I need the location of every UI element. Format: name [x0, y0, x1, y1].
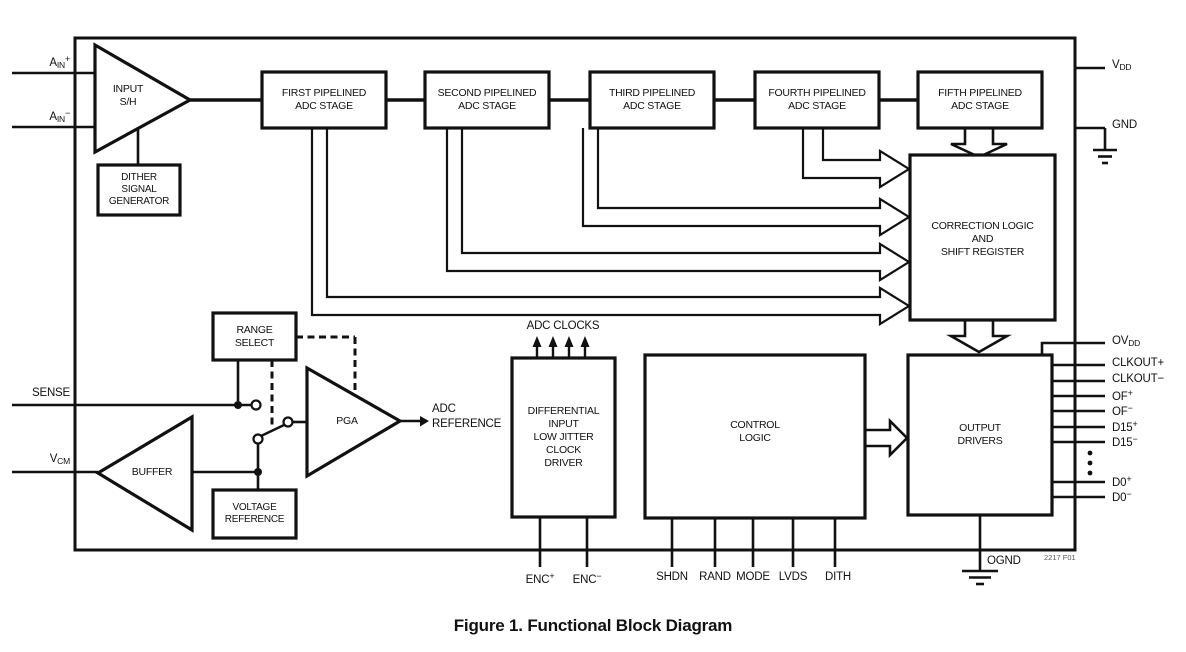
voltage-reference-label: VOLTAGE REFERENCE	[215, 492, 294, 536]
pin-of-plus: OF+	[1112, 388, 1133, 403]
bus-ellipsis-dots	[1088, 451, 1093, 476]
pin-d0-plus: D0+	[1112, 474, 1131, 489]
adc-clocks-label: ADC CLOCKS	[513, 320, 613, 332]
stage4-bus-arrow	[803, 128, 909, 187]
correction-label: CORRECTION LOGIC AND SHIFT REGISTER	[912, 160, 1053, 318]
control-right-arrow	[865, 421, 907, 455]
pin-clkout-minus: CLKOUT−	[1112, 373, 1164, 385]
pin-sense: SENSE	[16, 387, 70, 399]
pin-of-minus: OF−	[1112, 403, 1133, 418]
pin-enc-plus: ENC+	[515, 571, 565, 586]
stage3-label: THIRD PIPELINEDADC STAGE	[592, 74, 712, 126]
pin-d15-plus: D15+	[1112, 419, 1138, 434]
pin-ognd: OGND	[987, 555, 1021, 567]
stage5-down-arrow	[951, 128, 1007, 157]
input-sh-label: INPUT S/H	[93, 80, 163, 112]
adc-reference-label: ADC REFERENCE	[432, 402, 501, 432]
stage2-label: SECOND PIPELINEDADC STAGE	[427, 74, 547, 126]
dither-label: DITHER SIGNAL GENERATOR	[100, 167, 178, 213]
pin-ovdd: OVDD	[1112, 335, 1140, 348]
pin-ain-minus: AIN−	[20, 108, 70, 124]
pin-clkout-plus: CLKOUT+	[1112, 357, 1164, 369]
pin-vdd: VDD	[1112, 59, 1131, 72]
stage1-label: FIRST PIPELINEDADC STAGE	[264, 74, 384, 126]
control-logic-label: CONTROL LOGIC	[647, 357, 863, 507]
output-drivers-label: OUTPUT DRIVERS	[910, 357, 1050, 513]
pin-ain-plus: AIN+	[20, 54, 70, 70]
pin-enc-minus: ENC−	[562, 571, 612, 586]
stage2-bus-arrow	[447, 128, 909, 280]
pin-gnd: GND	[1112, 119, 1137, 131]
adc-clock-arrows	[533, 336, 590, 358]
stage5-label: FIFTH PIPELINEDADC STAGE	[920, 74, 1040, 126]
pga-output-arrowhead	[420, 416, 429, 427]
clock-driver-label: DIFFERENTIAL INPUT LOW JITTER CLOCK DRIV…	[514, 360, 613, 515]
vdd-gnd-lines	[1075, 68, 1117, 163]
range-select-label: RANGE SELECT	[215, 315, 294, 358]
pin-dith: DITH	[813, 571, 863, 583]
pin-vcm: VCM	[20, 453, 70, 466]
functional-block-diagram: INPUT S/H DITHER SIGNAL GENERATOR FIRST …	[0, 0, 1186, 652]
stage3-bus-arrow	[583, 128, 909, 235]
pga-label: PGA	[320, 414, 374, 428]
pin-d15-minus: D15−	[1112, 434, 1138, 449]
buffer-label: BUFFER	[120, 465, 184, 479]
stage4-label: FOURTH PIPELINEDADC STAGE	[757, 74, 877, 126]
figure-ref: 2217 F01	[1044, 553, 1076, 562]
stage-bus-arrows	[312, 128, 909, 324]
correction-down-arrow	[951, 320, 1007, 352]
switch-blade[interactable]	[261, 425, 284, 436]
bottom-pin-lines	[540, 517, 835, 567]
figure-caption: Figure 1. Functional Block Diagram	[0, 616, 1186, 636]
pin-d0-minus: D0−	[1112, 489, 1131, 504]
pin-lvds: LVDS	[768, 571, 818, 583]
